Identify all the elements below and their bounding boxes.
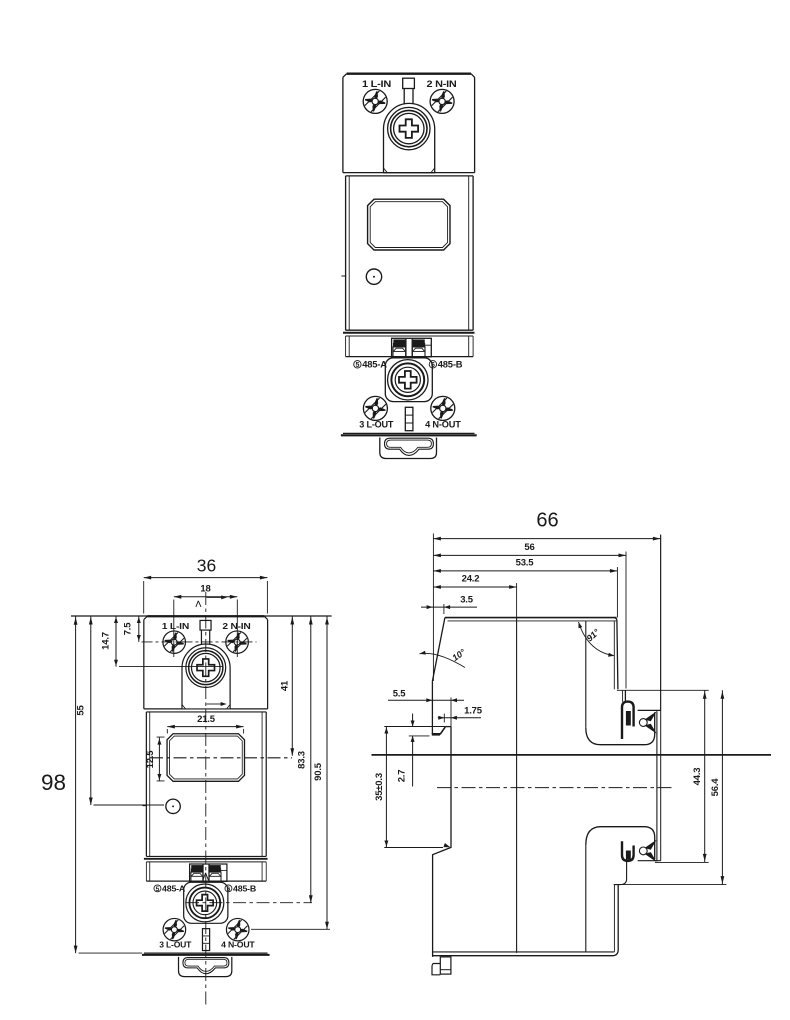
svg-text:83.3: 83.3 — [297, 751, 308, 769]
svg-text:5.5: 5.5 — [393, 689, 407, 700]
svg-text:98: 98 — [41, 770, 66, 795]
svg-text:56.4: 56.4 — [710, 778, 721, 797]
svg-text:3.5: 3.5 — [460, 594, 474, 605]
svg-text:14.7: 14.7 — [101, 632, 112, 650]
svg-text:90.5: 90.5 — [313, 762, 324, 781]
svg-text:56: 56 — [524, 542, 534, 553]
svg-text:41: 41 — [279, 680, 290, 691]
svg-text:24.2: 24.2 — [462, 574, 480, 585]
svg-text:12.5: 12.5 — [145, 750, 156, 769]
svg-text:35±0.3: 35±0.3 — [374, 773, 385, 801]
svg-text:66: 66 — [536, 510, 558, 532]
svg-text:55: 55 — [76, 705, 87, 716]
svg-text:53.5: 53.5 — [516, 558, 535, 569]
svg-text:44.3: 44.3 — [692, 768, 703, 786]
svg-text:7.5: 7.5 — [123, 622, 134, 636]
svg-text:36: 36 — [197, 556, 216, 576]
svg-text:2.7: 2.7 — [397, 770, 408, 783]
svg-text:21.5: 21.5 — [197, 714, 216, 725]
svg-text:1.75: 1.75 — [464, 706, 483, 717]
